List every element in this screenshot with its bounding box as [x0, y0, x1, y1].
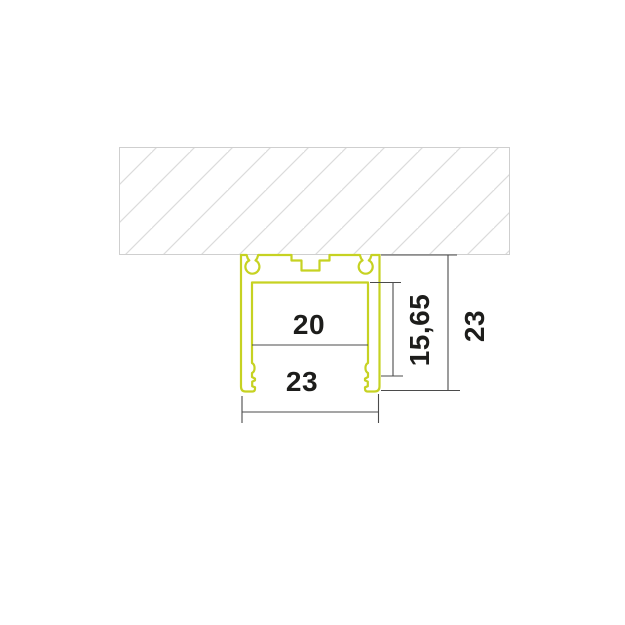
dim-bottom-width-label: 23 — [286, 366, 318, 397]
dim-inner-width-label: 20 — [293, 309, 325, 340]
ceiling-hatch — [120, 148, 510, 255]
dim-outer-height: 23 — [381, 255, 490, 391]
ceiling-hatch-fill — [120, 148, 510, 255]
technical-drawing-canvas: 20 23 15,65 23 — [0, 0, 625, 625]
dim-inner-width: 20 — [252, 309, 368, 345]
led-profile-ceiling-mount-cross-section: 20 23 15,65 23 — [0, 0, 625, 625]
dim-inner-height-label: 15,65 — [404, 294, 435, 367]
dim-bottom-width: 23 — [242, 366, 379, 423]
dim-outer-height-label: 23 — [459, 310, 490, 342]
